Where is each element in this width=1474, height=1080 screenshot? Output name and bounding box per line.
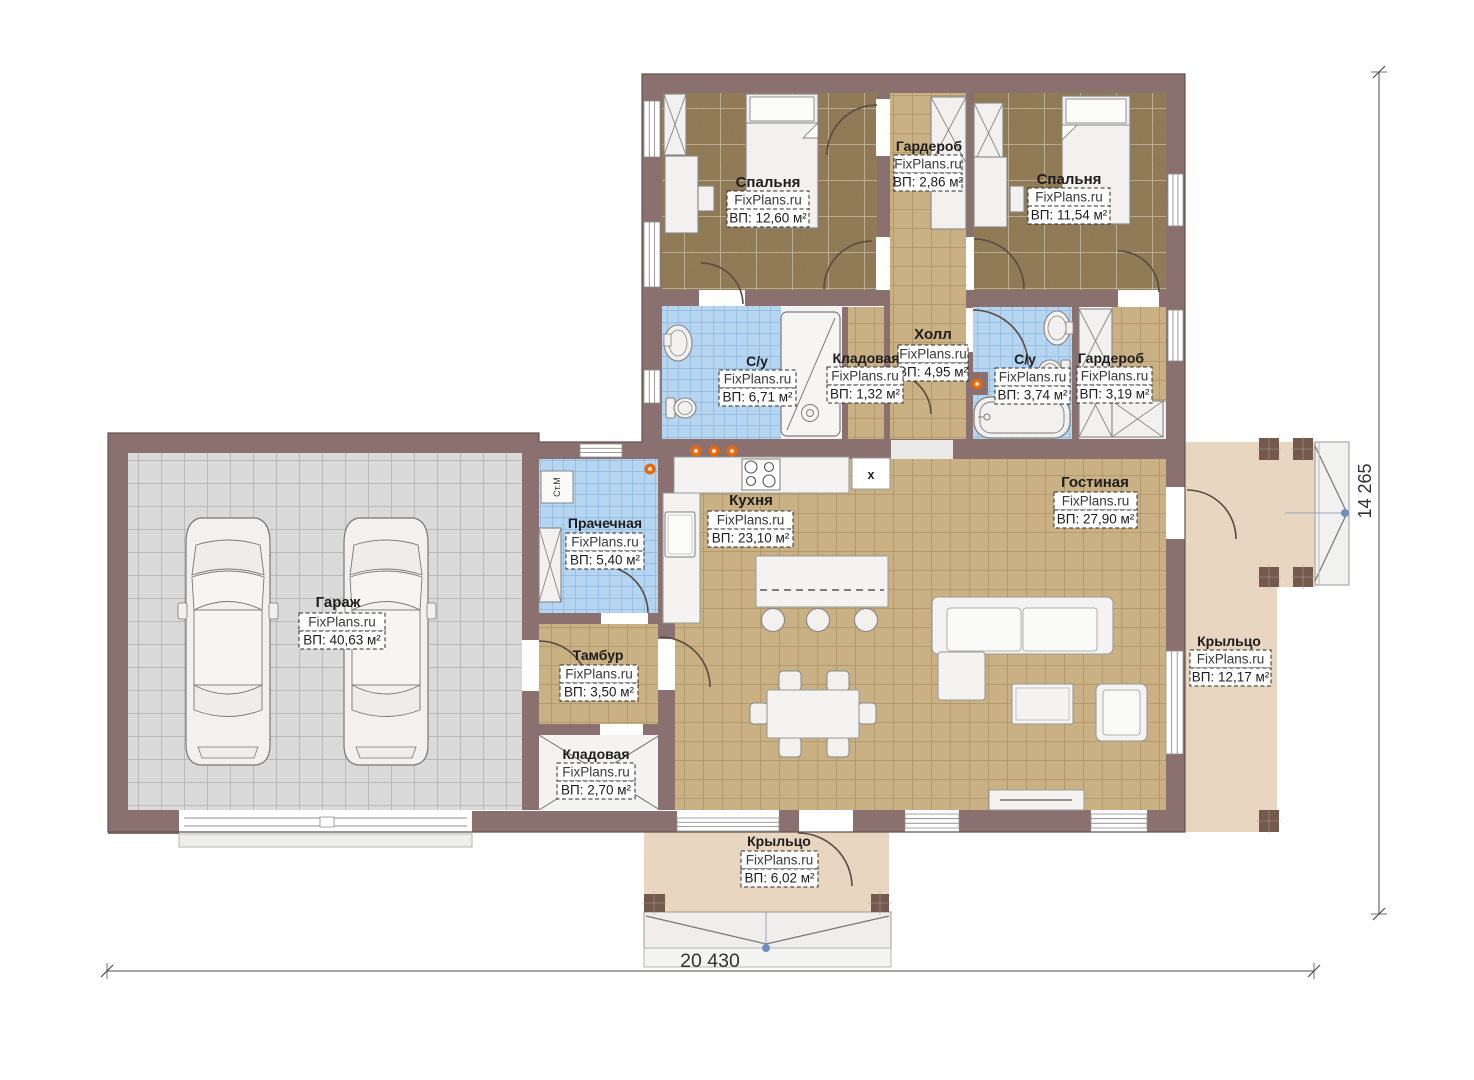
svg-text:Крыльцо: Крыльцо bbox=[747, 833, 811, 849]
svg-text:Гостиная: Гостиная bbox=[1061, 474, 1129, 491]
svg-text:FixPlans.ru: FixPlans.ru bbox=[734, 193, 802, 208]
svg-text:ВП: 12,60 м²: ВП: 12,60 м² bbox=[729, 211, 807, 226]
svg-text:ВП: 5,40 м²: ВП: 5,40 м² bbox=[570, 553, 641, 568]
svg-text:Гараж: Гараж bbox=[316, 594, 361, 611]
svg-text:FixPlans.ru: FixPlans.ru bbox=[831, 369, 899, 384]
svg-text:ВП: 3,19 м²: ВП: 3,19 м² bbox=[1079, 387, 1150, 402]
svg-text:Спальня: Спальня bbox=[1037, 171, 1102, 188]
svg-text:ВП: 2,70 м²: ВП: 2,70 м² bbox=[561, 783, 632, 798]
svg-text:FixPlans.ru: FixPlans.ru bbox=[308, 615, 376, 630]
svg-text:FixPlans.ru: FixPlans.ru bbox=[717, 513, 785, 528]
svg-text:ВП: 3,74 м²: ВП: 3,74 м² bbox=[997, 388, 1068, 403]
svg-text:ВП: 1,32 м²: ВП: 1,32 м² bbox=[830, 387, 901, 402]
svg-text:FixPlans.ru: FixPlans.ru bbox=[746, 853, 814, 868]
svg-text:FixPlans.ru: FixPlans.ru bbox=[1035, 190, 1103, 205]
svg-text:ВП: 2,86 м²: ВП: 2,86 м² bbox=[893, 175, 964, 190]
svg-text:ВП: 6,02 м²: ВП: 6,02 м² bbox=[744, 871, 815, 886]
svg-text:Холл: Холл bbox=[914, 326, 952, 343]
svg-text:FixPlans.ru: FixPlans.ru bbox=[571, 535, 639, 550]
svg-text:FixPlans.ru: FixPlans.ru bbox=[899, 347, 967, 362]
svg-text:ВП: 3,50 м²: ВП: 3,50 м² bbox=[564, 685, 635, 700]
svg-text:FixPlans.ru: FixPlans.ru bbox=[724, 372, 792, 387]
svg-text:Ст.М: Ст.М bbox=[552, 477, 562, 497]
svg-text:ВП: 11,54 м²: ВП: 11,54 м² bbox=[1031, 208, 1108, 223]
svg-text:ВП: 12,17 м²: ВП: 12,17 м² bbox=[1192, 670, 1270, 685]
svg-text:Гардероб: Гардероб bbox=[1078, 350, 1145, 366]
svg-text:ВП: 6,71 м²: ВП: 6,71 м² bbox=[722, 390, 793, 405]
svg-text:FixPlans.ru: FixPlans.ru bbox=[562, 765, 630, 780]
svg-text:ВП: 23,10 м²: ВП: 23,10 м² bbox=[712, 531, 790, 546]
svg-text:14 265: 14 265 bbox=[1355, 463, 1375, 518]
svg-text:FixPlans.ru: FixPlans.ru bbox=[1062, 494, 1130, 509]
svg-text:С/у: С/у bbox=[1014, 351, 1036, 367]
svg-text:х: х bbox=[868, 468, 875, 482]
svg-text:Гардероб: Гардероб bbox=[896, 138, 963, 154]
svg-text:ВП: 27,90 м²: ВП: 27,90 м² bbox=[1057, 512, 1135, 527]
svg-text:Тамбур: Тамбур bbox=[573, 647, 624, 663]
svg-text:Спальня: Спальня bbox=[736, 174, 801, 191]
svg-text:Кладовая: Кладовая bbox=[832, 350, 899, 366]
svg-text:Кладовая: Кладовая bbox=[562, 746, 629, 762]
svg-text:FixPlans.ru: FixPlans.ru bbox=[1197, 652, 1265, 667]
svg-text:Кухня: Кухня bbox=[729, 492, 773, 509]
svg-text:ВП: 4,95 м²: ВП: 4,95 м² bbox=[898, 365, 969, 380]
svg-text:Прачечная: Прачечная bbox=[568, 515, 642, 531]
svg-text:FixPlans.ru: FixPlans.ru bbox=[894, 157, 962, 172]
svg-text:FixPlans.ru: FixPlans.ru bbox=[1081, 369, 1149, 384]
svg-text:FixPlans.ru: FixPlans.ru bbox=[999, 370, 1067, 385]
svg-text:ВП: 40,63 м²: ВП: 40,63 м² bbox=[303, 633, 381, 648]
svg-text:20 430: 20 430 bbox=[680, 950, 740, 972]
svg-text:FixPlans.ru: FixPlans.ru bbox=[565, 667, 633, 682]
svg-text:С/у: С/у bbox=[746, 353, 768, 369]
svg-text:Крыльцо: Крыльцо bbox=[1197, 633, 1261, 649]
